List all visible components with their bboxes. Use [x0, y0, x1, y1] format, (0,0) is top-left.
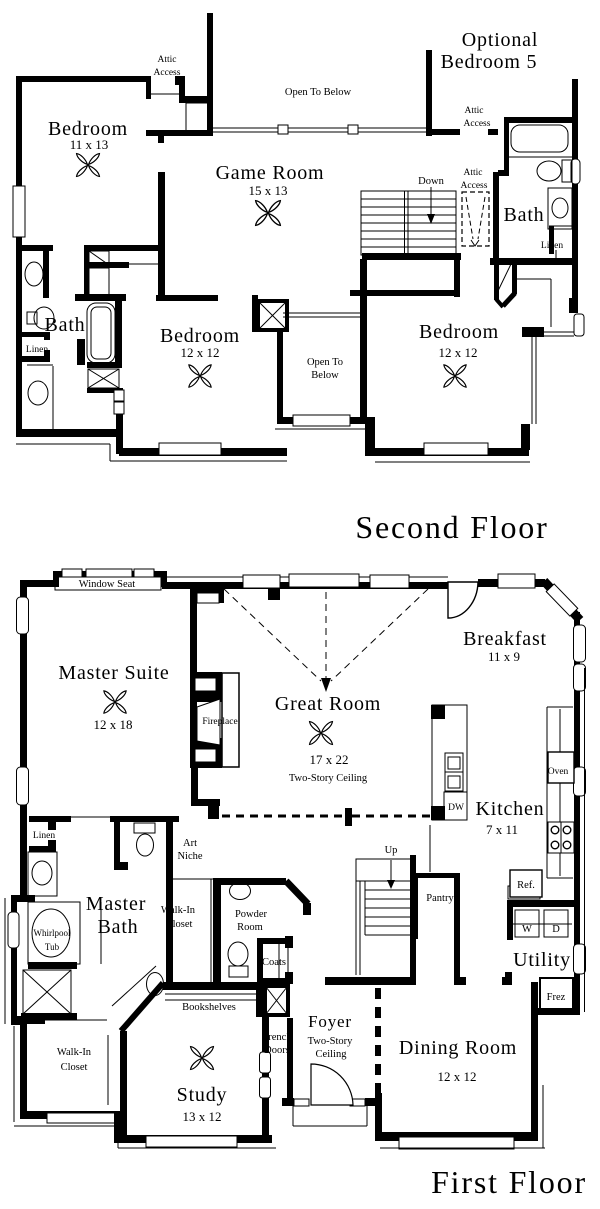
svg-text:Whirlpool: Whirlpool	[34, 928, 71, 938]
svg-text:First Floor: First Floor	[431, 1164, 587, 1200]
svg-text:Great Room: Great Room	[275, 693, 381, 715]
svg-text:Ceiling: Ceiling	[316, 1049, 348, 1060]
svg-text:Linen: Linen	[33, 831, 55, 841]
svg-text:12 x 12: 12 x 12	[181, 345, 220, 360]
svg-text:Attic: Attic	[158, 55, 177, 65]
svg-text:Closet: Closet	[166, 919, 193, 930]
svg-text:Foyer: Foyer	[308, 1012, 352, 1031]
svg-text:Up: Up	[385, 845, 398, 856]
svg-text:Ref.: Ref.	[517, 880, 535, 891]
svg-text:Game Room: Game Room	[216, 162, 325, 184]
svg-text:Optional: Optional	[462, 29, 538, 51]
svg-text:Bedroom: Bedroom	[419, 321, 499, 343]
svg-text:Powder: Powder	[235, 909, 268, 920]
svg-text:French: French	[262, 1032, 292, 1043]
svg-text:Breakfast: Breakfast	[463, 628, 547, 650]
svg-text:Pantry: Pantry	[426, 893, 454, 904]
svg-text:Attic: Attic	[465, 106, 484, 116]
svg-text:Second Floor: Second Floor	[355, 509, 548, 545]
svg-text:Doors: Doors	[264, 1045, 290, 1056]
svg-text:Utility: Utility	[513, 949, 571, 971]
svg-text:Fireplace: Fireplace	[202, 717, 237, 727]
svg-text:12 x 18: 12 x 18	[94, 717, 133, 732]
svg-text:13 x 12: 13 x 12	[183, 1109, 222, 1124]
svg-text:W: W	[522, 924, 532, 935]
svg-text:Walk-In: Walk-In	[161, 905, 196, 916]
svg-text:Coats: Coats	[262, 957, 286, 968]
svg-text:Bedroom: Bedroom	[160, 325, 240, 347]
svg-text:Access: Access	[464, 119, 491, 129]
svg-text:Niche: Niche	[177, 851, 202, 862]
svg-text:Master Suite: Master Suite	[58, 662, 169, 684]
svg-text:Attic: Attic	[464, 168, 483, 178]
svg-text:D: D	[552, 924, 560, 935]
svg-text:12 x 12: 12 x 12	[439, 345, 478, 360]
svg-text:Bedroom 5: Bedroom 5	[441, 51, 538, 73]
svg-text:Art: Art	[183, 838, 197, 849]
svg-text:17 x 22: 17 x 22	[310, 752, 349, 767]
svg-text:Walk-In: Walk-In	[57, 1047, 92, 1058]
svg-text:DW: DW	[448, 803, 464, 813]
svg-text:Window Seat: Window Seat	[79, 579, 136, 590]
svg-text:11 x 13: 11 x 13	[70, 137, 109, 152]
svg-text:Tub: Tub	[45, 942, 60, 952]
svg-text:Access: Access	[154, 68, 181, 78]
svg-text:Bath: Bath	[45, 314, 86, 336]
svg-text:Closet: Closet	[61, 1062, 88, 1073]
svg-text:Two-Story: Two-Story	[308, 1036, 354, 1047]
svg-text:7 x 11: 7 x 11	[486, 822, 518, 837]
svg-text:Two-Story Ceiling: Two-Story Ceiling	[289, 773, 368, 784]
svg-text:Down: Down	[418, 176, 444, 187]
svg-text:Bookshelves: Bookshelves	[182, 1002, 236, 1013]
svg-text:Dining Room: Dining Room	[399, 1037, 517, 1059]
svg-text:11 x 9: 11 x 9	[488, 649, 520, 664]
svg-text:Linen: Linen	[26, 345, 48, 355]
svg-text:Oven: Oven	[548, 767, 569, 777]
svg-text:Bath: Bath	[98, 916, 139, 938]
svg-text:Below: Below	[311, 370, 339, 381]
svg-text:Room: Room	[237, 922, 263, 933]
svg-text:Open To: Open To	[307, 357, 343, 368]
svg-text:15 x 13: 15 x 13	[249, 183, 288, 198]
svg-text:Linen: Linen	[541, 241, 563, 251]
svg-text:Frez: Frez	[547, 992, 566, 1003]
svg-text:Master: Master	[86, 893, 146, 915]
svg-text:Kitchen: Kitchen	[476, 798, 545, 820]
svg-text:Open To Below: Open To Below	[285, 87, 352, 98]
svg-text:Bath: Bath	[504, 204, 545, 226]
svg-text:12 x 12: 12 x 12	[438, 1069, 477, 1084]
svg-text:Study: Study	[177, 1084, 228, 1106]
svg-text:Access: Access	[461, 181, 488, 191]
